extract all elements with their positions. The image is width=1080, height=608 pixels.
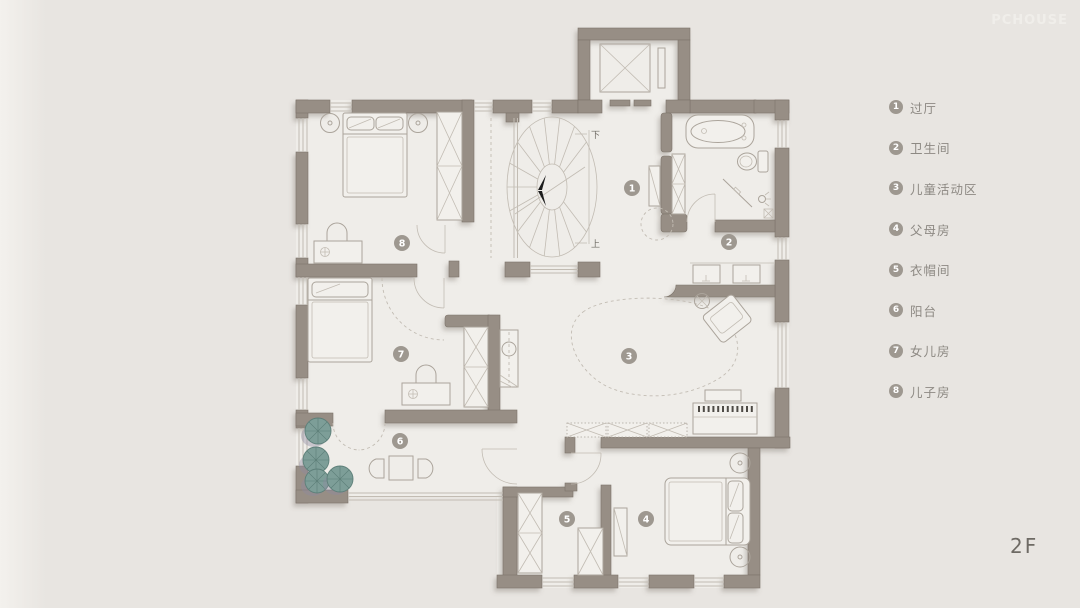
legend-label: 女儿房 [910,341,951,360]
single-bed [308,278,372,362]
svg-text:2: 2 [726,238,733,249]
hall-cabinet [649,166,660,206]
wardrobe [518,493,542,573]
svg-text:8: 8 [399,239,406,250]
room-badge-5: 5 [559,511,575,527]
room-badge-6: 6 [392,433,408,449]
nook-seat [693,265,720,283]
room-badge-7: 7 [393,346,409,362]
legend-label: 衣帽间 [910,260,951,279]
legend-badge: 8 [889,384,903,398]
svg-text:6: 6 [397,437,404,448]
legend-label: 过厅 [910,98,937,117]
legend: 1 过厅 2 卫生间 3 儿童活动区 4 父母房 5 衣帽间 6 阳台 7 女儿… [889,87,978,412]
legend-badge: 7 [889,344,903,358]
bench-cushions [567,423,687,437]
wardrobe [464,327,488,407]
nook-seat [733,265,760,283]
stairs-up-label: 上 [591,239,600,250]
bath-cabinet [672,154,685,214]
legend-label: 儿子房 [910,382,951,401]
legend-label: 卫生间 [910,138,951,157]
wardrobe [578,528,603,575]
legend-label: 父母房 [910,220,951,239]
room-badge-8: 8 [394,235,410,251]
legend-item: 4 父母房 [889,209,978,250]
double-bed [343,113,407,197]
watermark: PCHOUSE [991,13,1068,28]
legend-item: 8 儿子房 [889,371,978,412]
svg-text:4: 4 [643,515,650,526]
room-badge-4: 4 [638,511,654,527]
legend-badge: 2 [889,141,903,155]
legend-badge: 6 [889,303,903,317]
double-bed [665,478,750,545]
stairs-down-label: 下 [591,131,600,141]
wash-column [500,330,518,387]
room-badge-3: 3 [621,348,637,364]
legend-badge: 4 [889,222,903,236]
svg-text:7: 7 [398,350,405,361]
room-badge-1: 1 [624,180,640,196]
page: 下 上 [0,0,1080,608]
svg-text:1: 1 [629,184,636,195]
legend-item: 6 阳台 [889,290,978,331]
svg-text:5: 5 [564,515,571,526]
legend-badge: 1 [889,100,903,114]
toilet [738,151,769,172]
piano-bench [705,390,741,401]
mirror-cabinet [614,508,627,556]
room-badge-2: 2 [721,234,737,250]
legend-item: 3 儿童活动区 [889,168,978,209]
desk [402,383,450,405]
legend-item: 2 卫生间 [889,128,978,169]
legend-label: 阳台 [910,301,937,320]
legend-item: 5 衣帽间 [889,249,978,290]
legend-badge: 3 [889,181,903,195]
legend-label: 儿童活动区 [910,179,978,198]
legend-item: 1 过厅 [889,87,978,128]
svg-text:3: 3 [626,352,633,363]
legend-item: 7 女儿房 [889,331,978,372]
desk [314,241,362,263]
floor-label: 2F [1010,534,1038,558]
wardrobe [437,112,462,220]
legend-badge: 5 [889,263,903,277]
bathtub [686,115,754,148]
